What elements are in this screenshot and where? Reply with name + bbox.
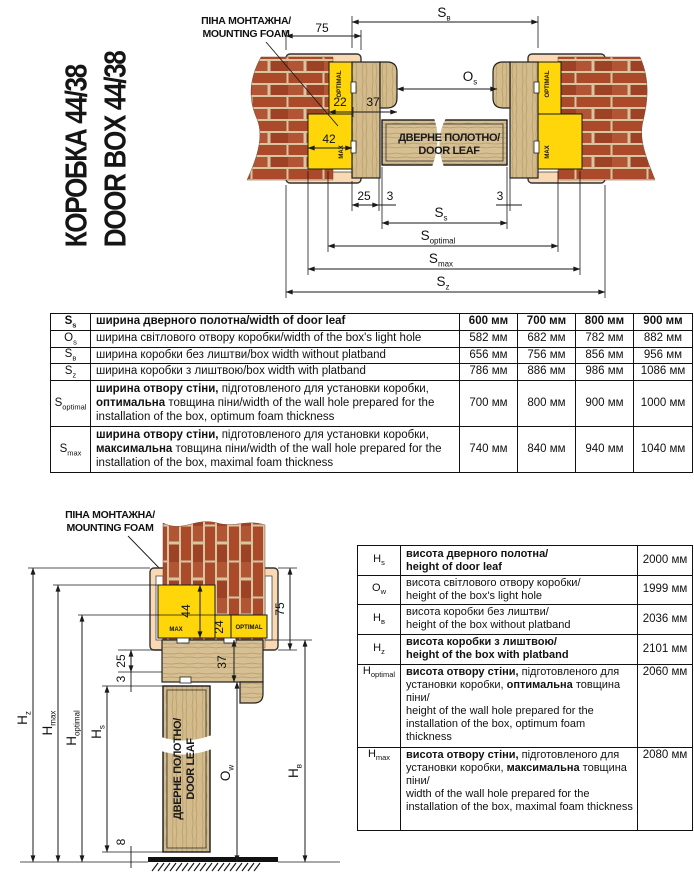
door-leaf-section: ДВЕРНЕ ПОЛОТНО/ DOOR LEAF — [161, 686, 212, 852]
dim-label-os: Os — [463, 69, 478, 87]
table-row: Hz висота коробки з лиштвою/ height of t… — [358, 634, 693, 664]
table-row: Hmax висота отвору стіни, підготовленого… — [358, 747, 693, 830]
dim-value-foam-opt: 22 — [333, 95, 347, 109]
floor-line — [148, 857, 278, 862]
mounting-foam-label-en: MOUNTING FOAM — [202, 28, 290, 40]
table-row: Smax ширина отвору стіни, підготовленого… — [51, 427, 693, 473]
page: КОРОБКА 44/38 DOOR BOX 44/38 — [0, 0, 694, 878]
dim-value-box-face: 25 — [114, 654, 128, 668]
dim-label-ow: Ow — [218, 765, 236, 782]
dim-label-hmax: Hmax — [40, 711, 58, 736]
table-row: Os ширина світлового отвору коробки/widt… — [51, 330, 693, 347]
dim-label-hoptimal: Hoptimal — [64, 710, 82, 746]
left-wall-assembly: OPTIMAL MAX — [247, 54, 397, 183]
foam-max-label: MAX — [339, 145, 345, 158]
dim-value-box-profile: 37 — [366, 95, 380, 109]
foam-max-right — [537, 114, 582, 169]
table-row: Hs висота дверного полотна/ height of do… — [358, 546, 693, 576]
seal-groove — [180, 677, 191, 683]
dim-label-hz: Hz — [15, 711, 33, 725]
dim-label-soptimal: Soptimal — [421, 228, 456, 246]
door-box-left — [352, 62, 380, 178]
foam-optimal-label: OPTIMAL — [236, 625, 263, 631]
mounting-foam-label-en: MOUNTING FOAM — [66, 522, 154, 534]
dim-label-sz: Sz — [436, 274, 449, 292]
door-leaf-label-en: DOOR LEAF — [185, 738, 197, 800]
dim-label-hb: Hв — [286, 764, 304, 778]
foam-optimal-label: OPTIMAL — [545, 70, 551, 97]
seal-groove — [351, 82, 356, 93]
dim-label-ss: Ss — [434, 205, 447, 223]
door-leaf-label-ua: ДВЕРНЕ ПОЛОТНО/ — [398, 132, 500, 144]
dim-value-gap-top: 3 — [114, 675, 128, 682]
door-leaf-label-en: DOOR LEAF — [418, 145, 480, 157]
seal-groove — [534, 82, 539, 93]
height-table: Hs висота дверного полотна/ height of do… — [357, 545, 693, 831]
dim-value-foam-opt: 24 — [212, 620, 226, 634]
mounting-foam-label-ua: ПІНА МОНТАЖНА/ — [65, 509, 155, 521]
table-row: Ow висота світлового отвору коробки/ hei… — [358, 576, 693, 605]
foam-max-label: MAX — [545, 145, 551, 158]
dim-label-smax: Smax — [429, 251, 453, 269]
door-leaf-plan: ДВЕРНЕ ПОЛОТНО/ DOOR LEAF — [382, 118, 507, 167]
dim-value-platband: 75 — [315, 21, 329, 35]
dim-value-box-profile: 37 — [215, 655, 229, 669]
dim-value-floor-gap: 8 — [114, 838, 128, 845]
table-row: Ss ширина дверного полотна/width of door… — [51, 314, 693, 331]
seal-groove — [177, 638, 189, 643]
floor — [148, 857, 278, 871]
door-box-head-molding — [240, 682, 263, 703]
dim-value-foam-max: 42 — [322, 132, 336, 146]
dim-value-platband: 75 — [273, 602, 287, 616]
mounting-foam-label-ua: ПІНА МОНТАЖНА/ — [201, 15, 291, 27]
right-wall-assembly: OPTIMAL MAX — [493, 54, 655, 183]
door-box-right — [510, 62, 538, 178]
seal-groove — [351, 141, 356, 153]
door-box-left-molding — [380, 62, 397, 108]
width-table: Ss ширина дверного полотна/width of door… — [50, 313, 693, 473]
floor-hatching — [152, 863, 260, 871]
seal-groove — [534, 141, 539, 153]
door-box-right-molding — [493, 62, 510, 108]
door-leaf-label-ua: ДВЕРНЕ ПОЛОТНО/ — [172, 718, 184, 820]
table-row: Hв висота коробки без лиштви/ height of … — [358, 604, 693, 634]
foam-max-label: MAX — [169, 627, 182, 633]
table-row: Sв ширина коробки без лиштви/box width w… — [51, 347, 693, 364]
foam-optimal-label: OPTIMAL — [337, 70, 343, 97]
table-row: Soptimal ширина отвору стіни, підготовле… — [51, 381, 693, 427]
dim-value-box-face: 25 — [357, 189, 371, 203]
dim-value-gap-right: 3 — [497, 189, 504, 203]
table-row: Sz ширина коробки з лиштвою/box width wi… — [51, 364, 693, 381]
dim-label-sb: Sв — [437, 5, 450, 23]
dim-label-hs: Hs — [89, 725, 107, 739]
top-diagram: OPTIMAL MAX ДВЕРНЕ ПОЛОТНО/ DOOR LEAF OP… — [0, 0, 694, 312]
dim-value-foam-max: 44 — [179, 604, 193, 618]
door-box-head — [162, 640, 263, 682]
wall-head-assembly: MAX OPTIMAL 44 24 37 — [150, 522, 278, 703]
table-row: Hoptimal висота отвору стіни, підготовле… — [358, 664, 693, 747]
bottom-diagram: ПІНА МОНТАЖНА/ MOUNTING FOAM MAX OPTIMAL… — [0, 490, 355, 878]
dim-value-gap-left: 3 — [387, 189, 394, 203]
